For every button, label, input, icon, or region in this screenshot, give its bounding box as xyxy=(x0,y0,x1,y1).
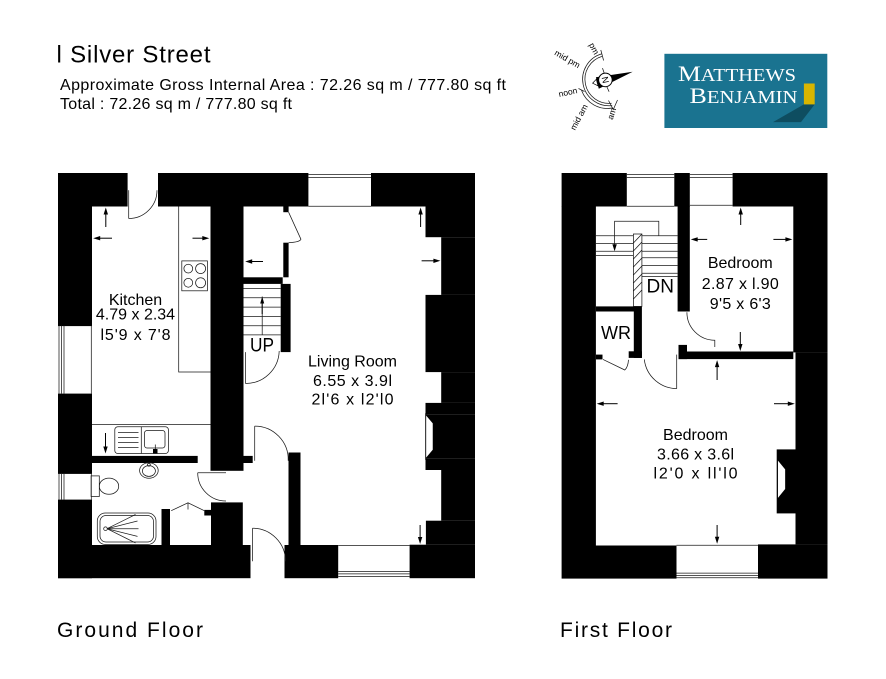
svg-text:Bedroom: Bedroom xyxy=(708,255,773,272)
svg-text:WR: WR xyxy=(601,323,631,343)
svg-text:Bedroom: Bedroom xyxy=(663,427,728,444)
svg-text:6.55 x 3.9l: 6.55 x 3.9l xyxy=(313,373,392,390)
svg-text:DN: DN xyxy=(647,277,674,298)
svg-text:9'5 x 6'3: 9'5 x 6'3 xyxy=(710,296,771,313)
svg-text:2.87 x l.90: 2.87 x l.90 xyxy=(702,276,779,293)
svg-text:l5'9 x 7'8: l5'9 x 7'8 xyxy=(101,327,171,344)
svg-text:l Silver Street: l Silver Street xyxy=(57,42,211,69)
svg-text:UP: UP xyxy=(250,336,274,357)
svg-text:Approximate Gross Internal Are: Approximate Gross Internal Area : 72.26 … xyxy=(60,77,507,94)
svg-text:4.79 x 2.34: 4.79 x 2.34 xyxy=(96,307,175,324)
svg-text:Living Room: Living Room xyxy=(308,354,397,371)
svg-text:Total : 72.26 sq m / 777.80 sq: Total : 72.26 sq m / 777.80 sq ft xyxy=(60,96,293,113)
svg-text:l2'0 x ll'l0: l2'0 x ll'l0 xyxy=(654,466,738,483)
svg-text:2l'6 x l2'l0: 2l'6 x l2'l0 xyxy=(312,392,394,409)
svg-text:BENJAMIN: BENJAMIN xyxy=(690,83,798,108)
svg-text:3.66 x 3.6l: 3.66 x 3.6l xyxy=(657,446,734,463)
